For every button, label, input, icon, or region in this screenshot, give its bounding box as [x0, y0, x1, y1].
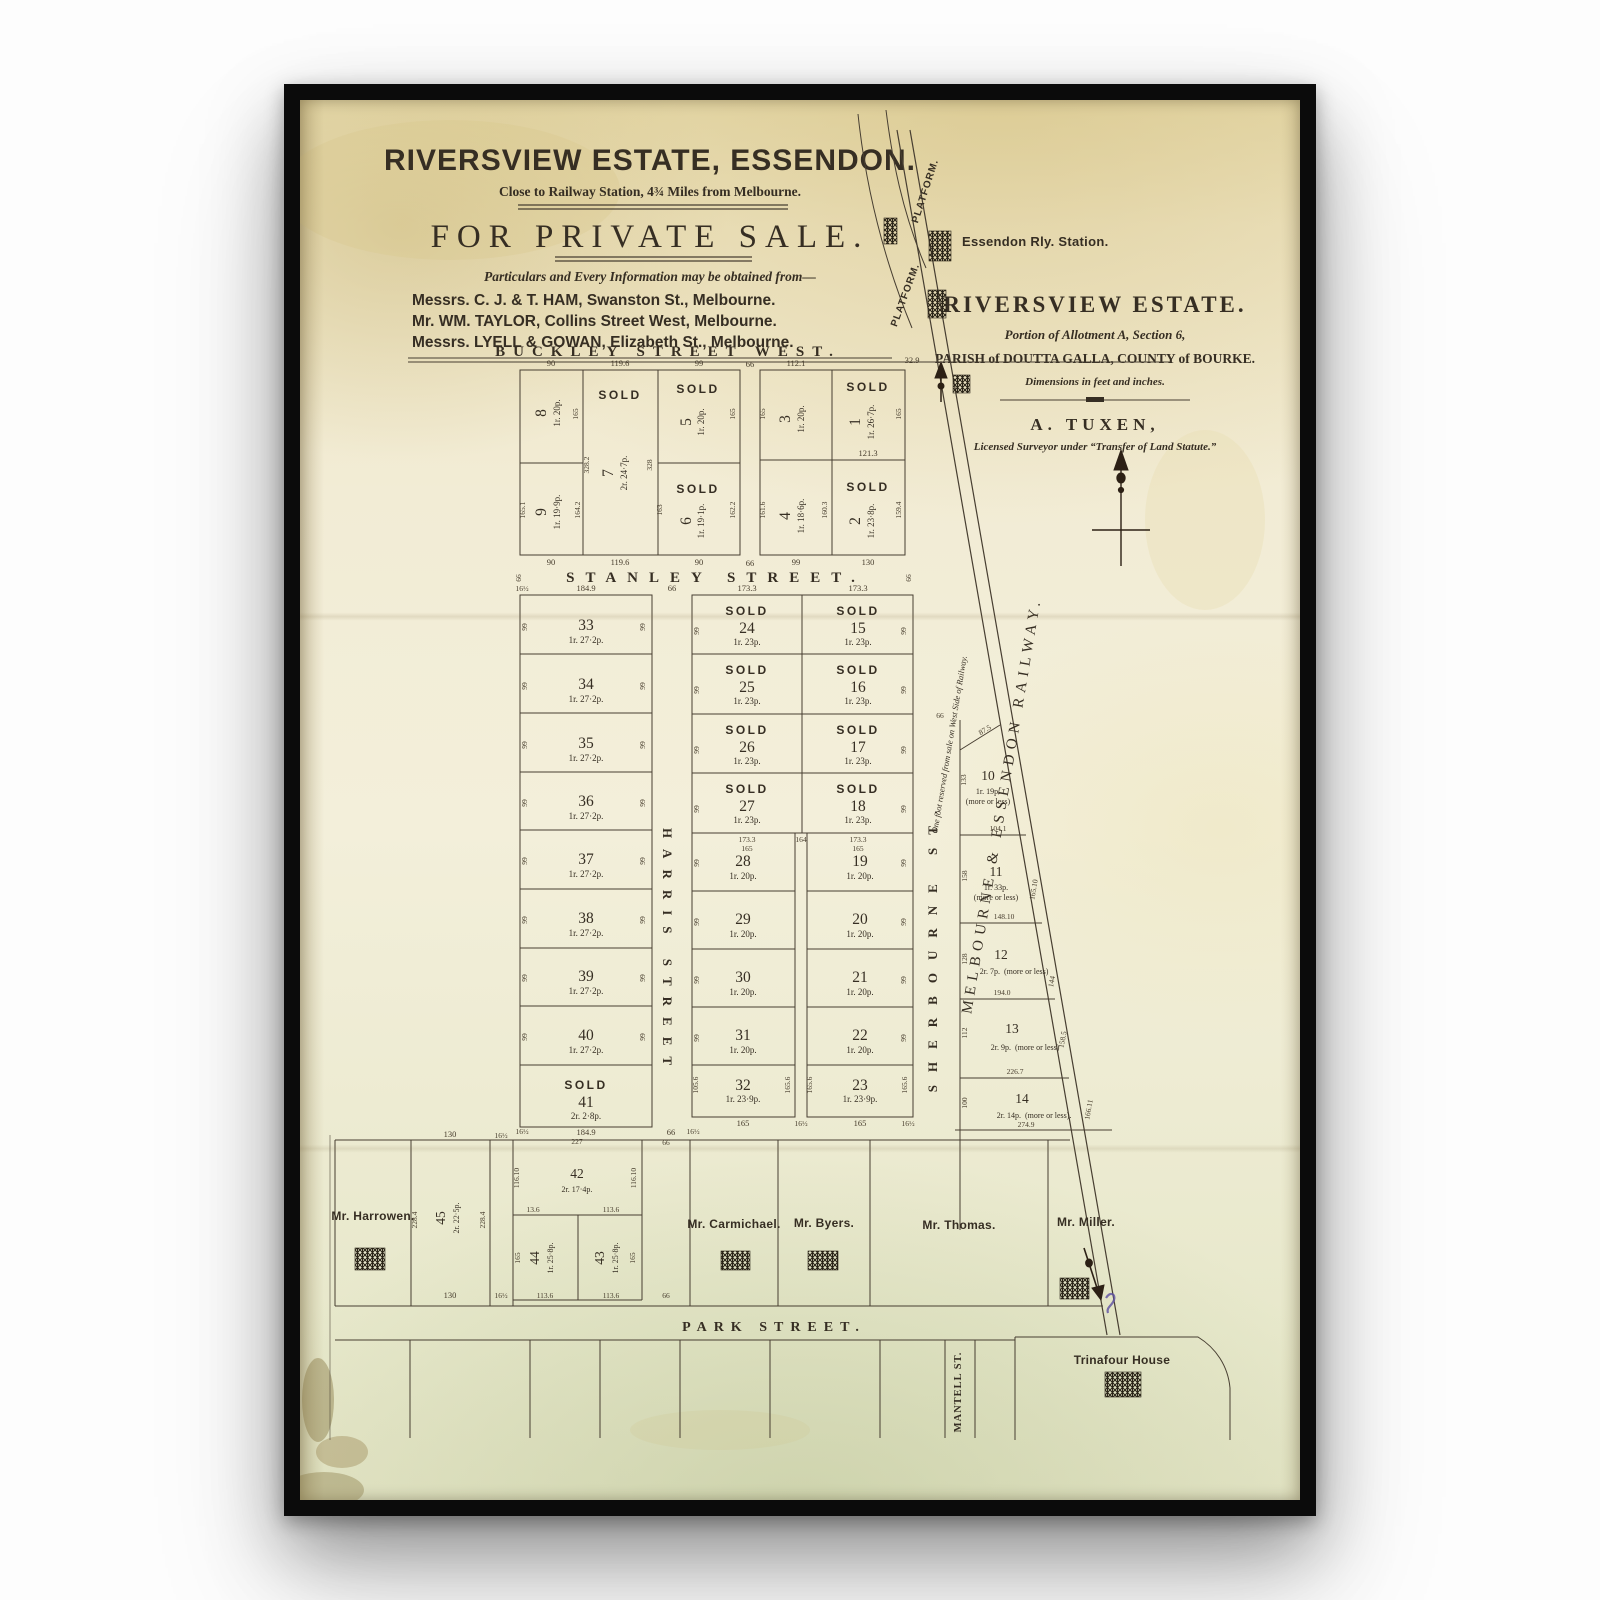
lot-36: 361r. 27·2p. — [569, 793, 604, 821]
lot-44: 44 1r. 25·8p. — [527, 1243, 555, 1274]
lot-18: SOLD181r. 23p. — [836, 782, 879, 825]
owner-harrowen: Mr. Harrowen. — [331, 1209, 414, 1223]
lot-4: 4 1r. 18·6p. — [777, 499, 806, 534]
lot-number: 11 — [990, 864, 1003, 879]
dim-label: 161.6 — [758, 501, 767, 518]
house-harrowen — [355, 1248, 385, 1270]
lot-area: 1r. 23p. — [733, 756, 760, 766]
lot-35: 351r. 27·2p. — [569, 735, 604, 763]
dim-label: 16½ — [494, 1131, 508, 1140]
dim-label: 16½ — [515, 584, 529, 593]
dim-label: 160.3 — [820, 501, 829, 518]
dim-label: 13.6 — [526, 1205, 539, 1214]
lot-number: 36 — [578, 793, 594, 810]
dim-label: 164 — [795, 835, 807, 844]
dim-label: 99 — [638, 1033, 647, 1041]
lot-area: 1r. 33p. — [984, 883, 1008, 892]
lot-number: 6 — [678, 517, 695, 525]
lot-area: 1r. 20p. — [846, 987, 873, 997]
dim-label: 128 — [960, 953, 969, 965]
dim-label: 184.9 — [576, 1127, 595, 1137]
lot-area: 1r. 20p. — [729, 1045, 756, 1055]
dim-label: 158.5 — [1057, 1030, 1069, 1048]
lot-area: 1r. 23·8p. — [866, 504, 876, 539]
lot-area: 2r. 24·7p. — [619, 456, 629, 491]
bottom-section: Mr. Harrowen. 45 2r. 22·5p. 130 130 228.… — [331, 1129, 1170, 1397]
lot-25: SOLD251r. 23p. — [725, 663, 768, 706]
station-building — [929, 231, 951, 261]
dim-label: 87.5 — [977, 723, 993, 737]
estate-heading: RIVERSVIEW ESTATE. — [943, 292, 1246, 317]
lot-number: 45 — [433, 1211, 448, 1225]
dim-label: 90 — [547, 358, 556, 368]
dim-label: 163 — [655, 504, 664, 516]
lot-9: 9 1r. 19·9p. — [533, 495, 562, 530]
dim-label: 99 — [692, 746, 701, 754]
lot-number: 9 — [533, 508, 550, 516]
dim-label: 90 — [547, 557, 556, 567]
lot-number: 13 — [1005, 1021, 1019, 1036]
dim-label: 99 — [692, 1034, 701, 1042]
lot-24: SOLD241r. 23p. — [725, 604, 768, 647]
lot-area-note: (more or less) — [1015, 1043, 1060, 1052]
dim-label: 99 — [899, 746, 908, 754]
lot-number: 7 — [600, 469, 617, 477]
lot-number: 16 — [850, 679, 866, 696]
sold-label: SOLD — [836, 663, 879, 677]
lot-area: 1r. 20p. — [846, 871, 873, 881]
lot-29: 291r. 20p. — [729, 911, 756, 939]
dim-label: 99 — [692, 805, 701, 813]
lot-area: 1r. 27·2p. — [569, 928, 604, 938]
lot-area: 1r. 23·9p. — [843, 1094, 878, 1104]
dim-label: 119.6 — [611, 557, 630, 567]
lot-area-note: (more or less) — [966, 797, 1011, 806]
lot-number: 42 — [570, 1166, 584, 1181]
dim-label: 99 — [692, 859, 701, 867]
dim-label: 194.0 — [994, 988, 1011, 997]
lot-13: 13 2r. 9p. (more or less) — [991, 1021, 1060, 1052]
street-stanley: STANLEY STREET. — [566, 570, 866, 586]
lot-41: SOLD 41 2r. 2·8p. — [564, 1078, 607, 1121]
sold-label: SOLD — [676, 482, 719, 496]
lot-number: 12 — [994, 947, 1008, 962]
lot-31: 311r. 20p. — [729, 1027, 756, 1055]
dim-label: 99 — [520, 682, 529, 690]
dim-label: 228.4 — [478, 1211, 487, 1228]
lot-number: 32 — [735, 1077, 751, 1094]
lot-22: 221r. 20p. — [846, 1027, 873, 1055]
house-trinafour — [1105, 1372, 1141, 1397]
page-title: RIVERSVIEW ESTATE, ESSENDON. — [384, 144, 916, 177]
agent-line: Messrs. C. J. & T. HAM, Swanston St., Me… — [412, 292, 775, 309]
dim-label: 100 — [960, 1097, 969, 1109]
lot-6: SOLD 6 1r. 19·1p. — [676, 482, 719, 538]
lot-15: SOLD151r. 23p. — [836, 604, 879, 647]
lot-area: 1r. 23p. — [733, 815, 760, 825]
lot-number: 4 — [777, 512, 794, 520]
dim-label: 130 — [444, 1129, 457, 1139]
platform-label: PLATFORM. — [889, 262, 922, 328]
lot-3: 3 1r. 20p. — [777, 405, 806, 432]
dim-label: 165 — [737, 1118, 750, 1128]
dim-label: 99 — [638, 916, 647, 924]
estate-line1: Portion of Allotment A, Section 6, — [1005, 327, 1186, 342]
dim-label: 228.4 — [410, 1211, 419, 1228]
dim-label: 165.6 — [783, 1076, 792, 1093]
dim-label: 66 — [514, 574, 523, 582]
dim-label: 99 — [792, 557, 801, 567]
dim-label: 165 — [852, 844, 864, 853]
dim-label: 165 — [571, 408, 580, 420]
dim-label: 113.6 — [603, 1291, 620, 1300]
lot-number: 35 — [578, 735, 594, 752]
lot-42: 42 2r. 17·4p. — [562, 1166, 593, 1194]
dim-label: 133 — [959, 774, 968, 786]
lot-number: 31 — [735, 1027, 751, 1044]
lot-area: 2r. 14p. — [997, 1111, 1021, 1120]
dim-label: 99 — [899, 627, 908, 635]
dim-label: 99 — [692, 686, 701, 694]
dim-label: 121.3 — [858, 448, 877, 458]
lot-number: 21 — [852, 969, 868, 986]
dim-label: 66 — [668, 583, 677, 593]
lot-number: 26 — [739, 739, 755, 756]
lot-area: 1r. 23p. — [844, 756, 871, 766]
dim-label: 66 — [904, 574, 913, 582]
street-harris: HARRIS STREET — [660, 828, 675, 1076]
estate-map: RIVERSVIEW ESTATE, ESSENDON. Close to Ra… — [300, 100, 1300, 1500]
station-building — [953, 375, 970, 393]
lot-number: 14 — [1015, 1091, 1029, 1106]
dim-label: 99 — [899, 859, 908, 867]
lot-area: 2r. 22·5p. — [452, 1203, 461, 1234]
dim-label: 99 — [899, 1034, 908, 1042]
lot-45: 45 2r. 22·5p. — [433, 1203, 461, 1234]
dim-label: 99 — [899, 805, 908, 813]
dim-label: 116.10 — [512, 1168, 521, 1189]
lot-number: 18 — [850, 798, 866, 815]
lot-area: 1r. 19·1p. — [696, 504, 706, 539]
lot-number: 22 — [852, 1027, 868, 1044]
dim-label: 130 — [444, 1290, 457, 1300]
dim-label: 99 — [520, 799, 529, 807]
sold-label: SOLD — [725, 782, 768, 796]
dim-label: 116.10 — [629, 1168, 638, 1189]
dim-label: 165 — [741, 844, 753, 853]
dim-label: 16½ — [686, 1127, 700, 1136]
lot-number: 25 — [739, 679, 755, 696]
dim-label: 165 — [758, 408, 767, 420]
dim-label: 99 — [520, 974, 529, 982]
lot-17: SOLD171r. 23p. — [836, 723, 879, 766]
dim-label: 99 — [692, 627, 701, 635]
lot-area: 2r. 9p. — [991, 1043, 1011, 1052]
dim-label: 66 — [746, 558, 755, 568]
map-paper: RIVERSVIEW ESTATE, ESSENDON. Close to Ra… — [300, 100, 1300, 1500]
lot-number: 1 — [847, 418, 864, 426]
sold-label: SOLD — [725, 604, 768, 618]
dim-label: 159.4 — [894, 501, 903, 518]
lot-1: SOLD 1 1r. 26·7p. — [846, 380, 889, 439]
dim-label: 173.3 — [848, 583, 867, 593]
dim-label: 99 — [638, 623, 647, 631]
dim-label: 99 — [692, 976, 701, 984]
lot-area: 1r. 20p. — [796, 405, 806, 432]
sold-label: SOLD — [725, 723, 768, 737]
lot-area: 1r. 27·2p. — [569, 811, 604, 821]
dim-label: 173.3 — [739, 835, 756, 844]
dim-label: 66 — [667, 1127, 676, 1137]
lot-number: 20 — [852, 911, 868, 928]
lot-area: 1r. 20p. — [696, 408, 706, 435]
info-line: Particulars and Every Information may be… — [484, 269, 816, 284]
lot-38: 381r. 27·2p. — [569, 910, 604, 938]
dim-label: 99 — [695, 358, 704, 368]
dim-label: 165 — [628, 1252, 637, 1264]
dim-label: 328.2 — [582, 456, 591, 473]
dim-label: 184.9 — [576, 583, 595, 593]
sold-label: SOLD — [676, 382, 719, 396]
owner-thomas: Mr. Thomas. — [922, 1218, 995, 1232]
north-arrow-icon — [1092, 450, 1150, 566]
lot-7: SOLD 7 2r. 24·7p. — [598, 388, 641, 490]
dim-label: 328 — [645, 459, 654, 471]
lot-40: 401r. 27·2p. — [569, 1027, 604, 1055]
sold-label: SOLD — [836, 604, 879, 618]
lot-number: 39 — [578, 968, 594, 985]
lot-area: 1r. 19p. — [976, 787, 1000, 796]
lot-39: 391r. 27·2p. — [569, 968, 604, 996]
lot-number: 41 — [578, 1094, 594, 1111]
dim-label: 99 — [899, 918, 908, 926]
rail-arrow-up-icon — [935, 362, 947, 402]
lot-area: 1r. 23p. — [844, 696, 871, 706]
dim-label: 99 — [520, 1033, 529, 1041]
lot-number: 17 — [850, 739, 866, 756]
lot-area: 1r. 20p. — [846, 1045, 873, 1055]
lot-number: 30 — [735, 969, 751, 986]
lot-area: 1r. 23·9p. — [726, 1094, 761, 1104]
dim-label: 165 — [894, 408, 903, 420]
lot-37: 371r. 27·2p. — [569, 851, 604, 879]
lot-area: 1r. 27·2p. — [569, 753, 604, 763]
dim-label: 99 — [638, 682, 647, 690]
lot-area: 1r. 27·2p. — [569, 1045, 604, 1055]
poster-frame: RIVERSVIEW ESTATE, ESSENDON. Close to Ra… — [284, 84, 1316, 1516]
lot-area: 1r. 27·2p. — [569, 986, 604, 996]
lot-43: 43 1r. 25·8p. — [592, 1243, 620, 1274]
dim-label: 99 — [638, 741, 647, 749]
lot-area-note: (more or less) — [1004, 967, 1049, 976]
lot-number: 43 — [592, 1251, 607, 1265]
surveyor-note: Licensed Surveyor under “Transfer of Lan… — [973, 441, 1217, 453]
lot-area: 1r. 20p. — [729, 929, 756, 939]
house-byers — [808, 1251, 838, 1270]
dim-label: 113.6 — [537, 1291, 554, 1300]
dim-label: 99 — [520, 916, 529, 924]
dim-label: 112 — [960, 1027, 969, 1038]
lot-area: 1r. 19·9p. — [552, 495, 562, 530]
lot-32: 321r. 23·9p. — [726, 1077, 761, 1104]
lot-number: 33 — [578, 617, 594, 634]
stanley-block: 16½ 184.9 66 173.3 173.3 66 66 331r. 27·… — [514, 574, 915, 1137]
lot-number: 24 — [739, 620, 755, 637]
lot-number: 28 — [735, 853, 751, 870]
lot-area: 1r. 25·8p. — [611, 1243, 620, 1274]
lot-26: SOLD261r. 23p. — [725, 723, 768, 766]
rule-under-sale — [555, 257, 752, 261]
dim-label: 173.3 — [850, 835, 867, 844]
lot-number: 34 — [578, 676, 594, 693]
lot-28: 281r. 20p. — [729, 853, 756, 881]
lot-2: SOLD 2 1r. 23·8p. — [846, 480, 889, 538]
dim-label: 99 — [692, 918, 701, 926]
agent-line: Mr. WM. TAYLOR, Collins Street West, Mel… — [412, 313, 777, 330]
lot-area: 1r. 20p. — [552, 399, 562, 426]
dim-label: 112.1 — [787, 358, 806, 368]
dim-label: 165.6 — [900, 1076, 909, 1093]
lot-area: 1r. 20p. — [729, 987, 756, 997]
lot-23: 231r. 23·9p. — [843, 1077, 878, 1104]
page-subtitle: Close to Railway Station, 4¾ Miles from … — [499, 184, 801, 199]
dim-label: 130 — [862, 557, 875, 567]
lot-area: 1r. 18·6p. — [796, 499, 806, 534]
lot-number: 19 — [852, 853, 868, 870]
lot-14: 14 2r. 14p. (more or less). — [997, 1091, 1072, 1120]
lot-area-note: (more or less). — [1025, 1111, 1071, 1120]
lot-area: 2r. 17·4p. — [562, 1185, 593, 1194]
lot-area: 1r. 20p. — [846, 929, 873, 939]
dim-label: 164.2 — [573, 501, 582, 518]
dim-label: 144 — [1046, 975, 1057, 988]
dim-label: 165 — [728, 408, 737, 420]
lot-30: 301r. 20p. — [729, 969, 756, 997]
dim-label: 66 — [662, 1291, 670, 1300]
lot-area: 1r. 27·2p. — [569, 635, 604, 645]
dim-label: 66 — [662, 1138, 670, 1147]
lot-area: 1r. 23p. — [844, 815, 871, 825]
lot-area: 1r. 23p. — [844, 637, 871, 647]
dim-label: 166.11 — [1082, 1099, 1094, 1121]
dim-label: 162.2 — [728, 501, 737, 518]
dim-label: 99 — [638, 974, 647, 982]
lot-33: 331r. 27·2p. — [569, 617, 604, 645]
lot-area: 1r. 23p. — [733, 637, 760, 647]
owner-miller: Mr. Miller. — [1057, 1215, 1115, 1229]
sold-label: SOLD — [846, 380, 889, 394]
lot-34: 341r. 27·2p. — [569, 676, 604, 704]
lot-number: 2 — [847, 517, 864, 525]
sold-label: SOLD — [836, 782, 879, 796]
street-mantell: MANTELL ST. — [953, 1352, 964, 1433]
lot-number: 37 — [578, 851, 594, 868]
estate-line2: PARISH of DOUTTA GALLA, COUNTY of BOURKE… — [935, 351, 1255, 366]
lot-area: 1r. 27·2p. — [569, 694, 604, 704]
sold-label: SOLD — [564, 1078, 607, 1092]
station-building — [928, 290, 946, 318]
lot-number: 3 — [777, 415, 794, 423]
dim-label: 173.3 — [737, 583, 756, 593]
sold-label: SOLD — [836, 723, 879, 737]
station-label: Essendon Rly. Station. — [962, 234, 1109, 249]
lot-12: 12 2r. 7p. (more or less) — [980, 947, 1049, 976]
dim-label: 99 — [638, 857, 647, 865]
dim-label: 148.10 — [994, 912, 1015, 921]
dim-label: 66 — [746, 359, 755, 369]
lot-number: 15 — [850, 620, 866, 637]
house-carmichael — [721, 1251, 750, 1270]
lot-number: 38 — [578, 910, 594, 927]
landmark-trinafour: Trinafour House — [1074, 1353, 1171, 1367]
lot-number: 29 — [735, 911, 751, 928]
dim-label: 99 — [899, 976, 908, 984]
lot-16: SOLD161r. 23p. — [836, 663, 879, 706]
lot-5: SOLD 5 1r. 20p. — [676, 382, 719, 436]
lot-area: 2r. 2·8p. — [571, 1111, 601, 1121]
lot-number: 27 — [739, 798, 755, 815]
dim-label: 165 — [513, 1252, 522, 1264]
house-miller — [1060, 1278, 1089, 1299]
lot-area-note: (more or less) — [974, 893, 1019, 902]
dim-label: 99 — [638, 799, 647, 807]
lot-number: 44 — [527, 1251, 542, 1265]
lot-21: 211r. 20p. — [846, 969, 873, 997]
estate-rule-dash — [1086, 397, 1104, 402]
dim-label: 226.7 — [1007, 1067, 1024, 1076]
dim-label: 16½ — [794, 1119, 808, 1128]
header-block: RIVERSVIEW ESTATE, ESSENDON. Close to Ra… — [384, 144, 916, 358]
sold-label: SOLD — [725, 663, 768, 677]
owner-byers: Mr. Byers. — [794, 1216, 854, 1230]
lot-number: 5 — [678, 418, 695, 426]
lot-number: 23 — [852, 1077, 868, 1094]
dim-label: 165 — [854, 1118, 867, 1128]
lot-8: 8 1r. 20p. — [533, 399, 562, 426]
dim-label: 227 — [571, 1137, 583, 1146]
dim-label: 32.9 — [905, 355, 920, 365]
lot-20: 201r. 20p. — [846, 911, 873, 939]
dim-label: 165.6 — [805, 1076, 814, 1093]
dim-label: 16½ — [494, 1291, 508, 1300]
dim-label: 66 — [936, 711, 944, 720]
street-park: PARK STREET. — [682, 1320, 866, 1335]
sale-heading: FOR PRIVATE SALE. — [431, 219, 870, 255]
dim-label: 158 — [960, 870, 969, 882]
sold-label: SOLD — [846, 480, 889, 494]
dim-label: 99 — [899, 686, 908, 694]
sold-label: SOLD — [598, 388, 641, 402]
dim-label: 105.6 — [691, 1076, 700, 1093]
dim-label: 99 — [520, 857, 529, 865]
dim-label: 274.9 — [1018, 1120, 1035, 1129]
lot-number: 10 — [981, 768, 995, 783]
wall-background: RIVERSVIEW ESTATE, ESSENDON. Close to Ra… — [0, 0, 1600, 1600]
dim-label: 113.6 — [603, 1205, 620, 1214]
dim-label: 99 — [520, 623, 529, 631]
lot-number: 40 — [578, 1027, 594, 1044]
dim-label: 165.1 — [518, 501, 527, 518]
lot-19: 191r. 20p. — [846, 853, 873, 881]
lot-area: 1r. 26·7p. — [866, 405, 876, 440]
dim-label: 90 — [695, 557, 704, 567]
lot-area: 1r. 27·2p. — [569, 869, 604, 879]
lot-area: 1r. 20p. — [729, 871, 756, 881]
lot-area: 2r. 7p. — [980, 967, 1000, 976]
dim-label: 119.6 — [611, 358, 630, 368]
dim-label: 104.1 — [990, 824, 1007, 833]
dim-label: 99 — [520, 741, 529, 749]
